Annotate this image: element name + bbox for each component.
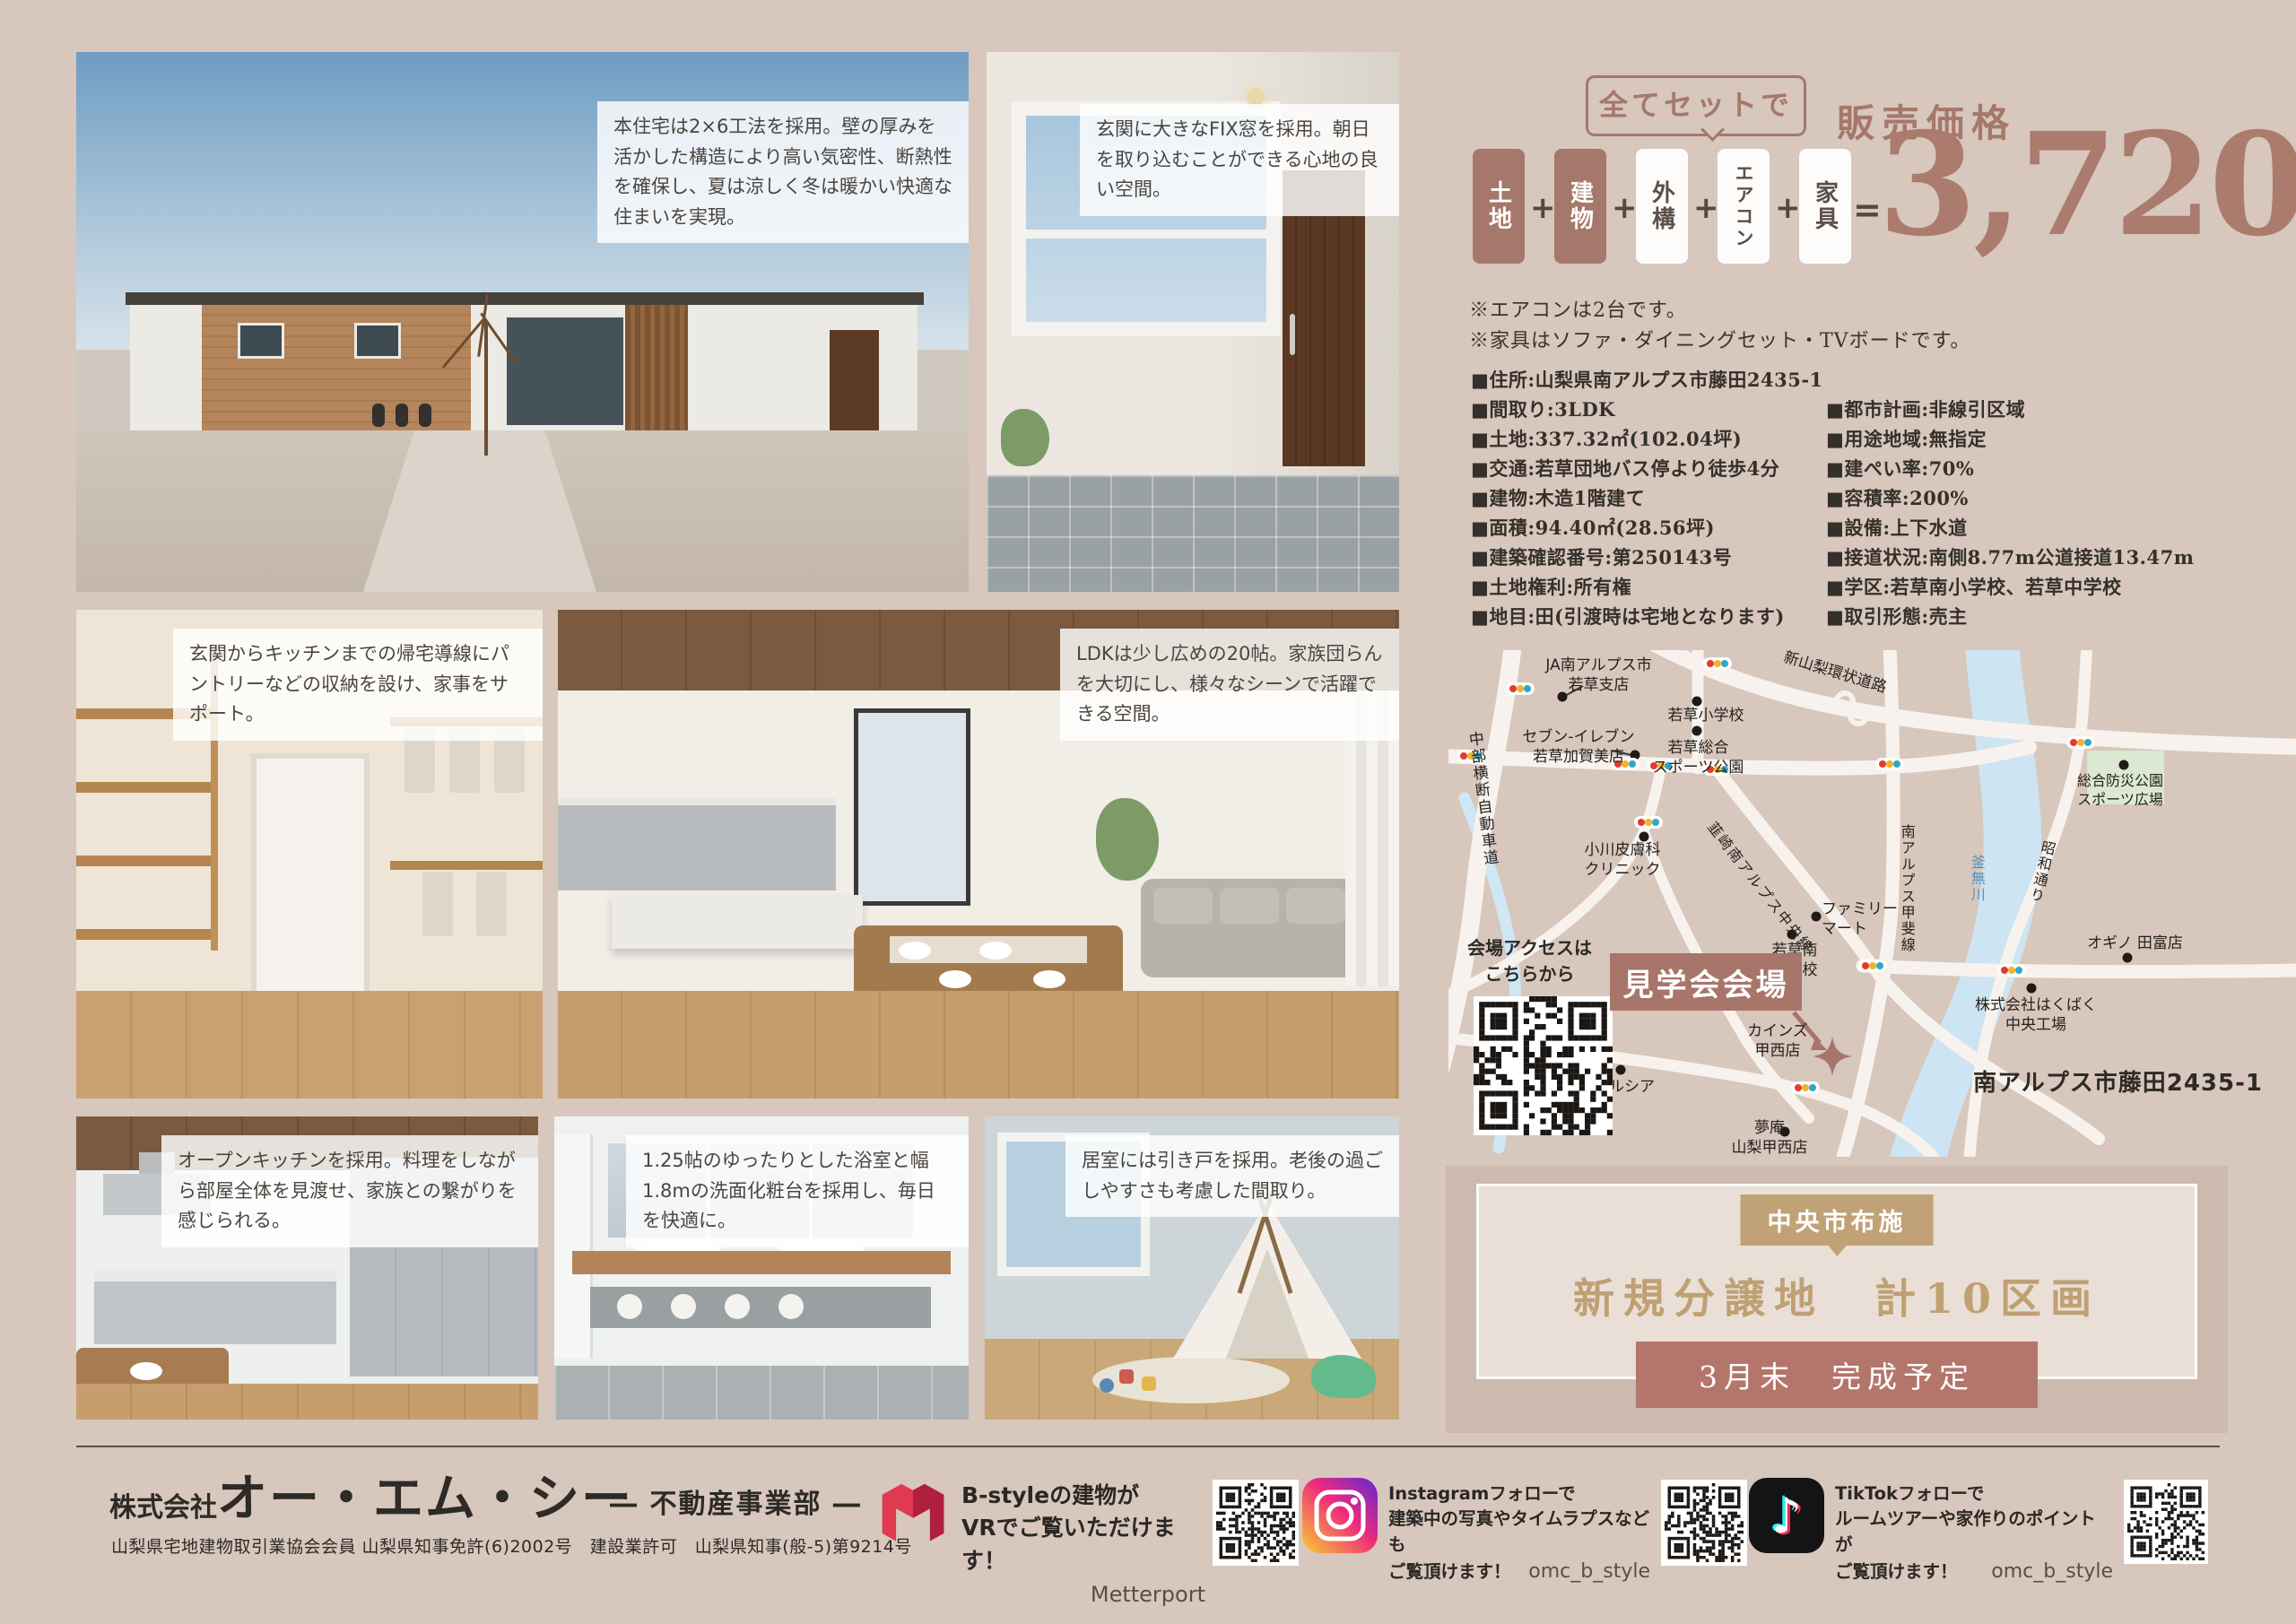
plus-sign: + <box>1775 190 1801 226</box>
access-map: JA南アルプス市 若草支店 中部横断自動車道 セブン-イレブン 若草加賀美店 若… <box>1448 650 2296 1157</box>
map-label-ogino: オギノ 田富店 <box>2074 934 2196 953</box>
instagram-text: Instagramフォローで 建築中の写真やタイムラプスなども ご覧頂けます！ … <box>1388 1481 1650 1586</box>
photo-entrance: 玄関に大きなFIX窓を採用。朝日を取り込むことができる心地の良い空間。 <box>987 52 1399 592</box>
instagram-line2: 建築中の写真やタイムラプスなども <box>1388 1507 1650 1558</box>
traffic-light <box>2066 736 2095 749</box>
plus-sign: + <box>1612 190 1638 226</box>
promo-location-tag: 中央市布施 <box>1741 1194 1934 1246</box>
company-prefix: 株式会社 <box>109 1485 217 1524</box>
detail-zoning: ■用途地域:無指定 <box>1826 425 1987 452</box>
photo-bedroom: 居室には引き戸を採用。老後の過ごしやすさも考慮した間取り。 <box>985 1116 1399 1420</box>
tiktok-handle: omc_b_style <box>1991 1558 2113 1586</box>
map-label-ja: JA南アルプス市 若草支店 <box>1538 656 1659 695</box>
bstyle-line1: B-styleの建物が <box>961 1480 1205 1512</box>
detail-floor-ratio: ■容積率:200% <box>1826 484 1969 511</box>
traffic-light <box>1634 816 1663 829</box>
map-label-familymart: ファミリー マート <box>1822 899 1907 939</box>
poi-dot <box>1692 697 1702 707</box>
kitchen-counter <box>558 798 836 890</box>
pendant-light <box>1247 88 1265 106</box>
detail-transaction: ■取引形態:売主 <box>1826 603 1968 630</box>
photo-caption-exterior: 本住宅は2×6工法を採用。壁の厚みを活かした構造により高い気密性、断熱性を確保し… <box>597 101 969 243</box>
map-qr-code <box>1474 996 1613 1135</box>
component-building: 建物 <box>1554 149 1606 264</box>
poi-dot <box>2119 760 2129 770</box>
photo-bathroom: 1.25帖のゆったりとした浴室と幅1.8mの洗面化粧台を採用し、毎日を快適に。 <box>554 1116 969 1420</box>
towel-shelf <box>590 1287 931 1328</box>
detail-address: ■住所:山梨県南アルプス市藤田2435-1 <box>1471 366 1823 393</box>
price-amount: 3,720 万円 <box>1878 115 2296 322</box>
exterior-roof <box>126 292 924 305</box>
traffic-light <box>1506 682 1535 695</box>
poi-dot <box>2027 984 2037 994</box>
toy-block <box>1142 1376 1156 1391</box>
wood-floor <box>76 991 543 1099</box>
pantry-door <box>251 753 370 999</box>
detail-layout: ■間取り:3LDK <box>1471 395 1615 422</box>
instagram-handle: omc_b_style <box>1528 1558 1650 1586</box>
map-label-seven-eleven: セブン-イレブン 若草加賀美店 <box>1520 727 1637 767</box>
tree <box>484 321 488 456</box>
map-label-kamanashi-river: 釜無川 <box>1967 838 1986 919</box>
detail-confirmation-no: ■建築確認番号:第250143号 <box>1471 543 1732 570</box>
detail-coverage: ■建ぺい率:70% <box>1826 455 1974 482</box>
venue-label: 見学会会場 <box>1610 953 1802 1011</box>
bstyle-text: B-styleの建物が VRでご覧いただけます！ Metterport <box>961 1480 1205 1611</box>
wood-floor <box>76 1384 538 1420</box>
component-furniture: 家具 <box>1799 149 1851 264</box>
detail-area: ■面積:94.40㎡(28.56坪) <box>1471 514 1715 541</box>
detail-access: ■交通:若草団地バス停より徒歩4分 <box>1471 455 1779 482</box>
photo-caption-ldk: LDKは少し広めの20帖。家族団らんを大切にし、様々なシーンで活躍できる空間。 <box>1060 629 1399 741</box>
bstyle-logo-icon <box>874 1478 952 1555</box>
person <box>396 404 408 427</box>
sofa <box>1141 879 1356 977</box>
toy-ball <box>1100 1378 1114 1393</box>
photo-kitchen: オープンキッチンを採用。料理をしながら部屋全体を見渡せ、家族との繋がりを感じられ… <box>76 1116 538 1420</box>
tiktok-qr-code <box>2124 1480 2208 1564</box>
all-set-bubble: 全てセットで <box>1586 75 1806 136</box>
exterior-window <box>238 323 284 359</box>
exterior-window <box>354 323 401 359</box>
plant <box>1096 798 1159 881</box>
plus-sign: + <box>1693 190 1719 226</box>
traffic-light <box>1703 657 1732 670</box>
tiktok-line2: ルームツアーや家作りのポイントが <box>1835 1507 2113 1558</box>
instagram-icon <box>1302 1478 1378 1553</box>
detail-city-planning: ■都市計画:非線引区域 <box>1826 395 2025 422</box>
tag-tail <box>1827 1245 1847 1256</box>
promo-location-text: 中央市布施 <box>1768 1209 1907 1237</box>
counter <box>94 1269 336 1281</box>
bstyle-qr-code <box>1213 1480 1299 1566</box>
exterior-house <box>130 305 918 430</box>
detail-land: ■土地:337.32㎡(102.04坪) <box>1471 425 1742 452</box>
island-counter <box>612 895 863 949</box>
exterior-slats <box>625 305 688 430</box>
photo-caption-bathroom: 1.25帖のゆったりとした浴室と幅1.8mの洗面化粧台を採用し、毎日を快適に。 <box>626 1135 969 1247</box>
map-label-kai-line: 南アルプス甲斐線 <box>1897 817 1916 960</box>
glass-door <box>854 708 970 906</box>
tiktok-line3: ご覧頂けます！ <box>1835 1559 1958 1585</box>
wood-floor <box>558 991 1399 1099</box>
map-address: 南アルプス市藤田2435-1 <box>1973 1064 2263 1098</box>
poi-dot <box>1812 912 1822 922</box>
detail-land-rights: ■土地権利:所有権 <box>1471 573 1631 600</box>
photo-exterior: 本住宅は2×6工法を採用。壁の厚みを活かした構造により高い気密性、断熱性を確保し… <box>76 52 969 592</box>
bstyle-credit: Metterport <box>961 1579 1205 1611</box>
plus-sign: + <box>1530 190 1556 226</box>
photo-caption-pantry: 玄関からキッチンまでの帰宅導線にパントリーなどの収納を設け、家事をサポート。 <box>173 629 543 741</box>
price-note-furniture: ※家具はソファ・ダイニングセット・TVボードです。 <box>1469 325 1970 353</box>
price-note-aircon: ※エアコンは2台です。 <box>1469 294 1687 323</box>
photo-pantry: 玄関からキッチンまでの帰宅導線にパントリーなどの収納を設け、家事をサポート。 <box>76 610 543 1099</box>
hanger-rod <box>390 861 543 870</box>
toy-dinosaur <box>1311 1355 1376 1398</box>
map-label-sports-park: 若草総合 スポーツ公園 <box>1651 738 1745 777</box>
photo-caption-kitchen: オープンキッチンを採用。料理をしながら部屋全体を見渡せ、家族との繋がりを感じられ… <box>161 1135 538 1247</box>
detail-structure: ■建物:木造1階建て <box>1471 484 1645 511</box>
person <box>419 404 431 427</box>
plant <box>1001 409 1049 466</box>
promo-headline: 新規分譲地 計10区画 <box>1446 1266 2228 1325</box>
footer-divider <box>76 1446 2220 1447</box>
poi-dot <box>1692 726 1702 736</box>
bstyle-line2: VRでご覧いただけます！ <box>961 1512 1205 1577</box>
promo-completion: 3月末 完成予定 <box>1636 1342 2038 1408</box>
map-label-cainz: カインズ 甲西店 <box>1741 1021 1814 1061</box>
company-division: ― 不動産事業部 ― <box>610 1481 862 1521</box>
price-number: 3,720 <box>1878 115 2296 256</box>
map-label-bousai-park: 総合防災公園 スポーツ広場 <box>2067 772 2173 810</box>
toy-block <box>1119 1369 1134 1384</box>
tiktok-icon: ♪ ♪ ♪ <box>1749 1478 1824 1553</box>
photo-caption-bedroom: 居室には引き戸を採用。老後の過ごしやすさも考慮した間取り。 <box>1065 1135 1399 1217</box>
detail-school: ■学区:若草南小学校、若草中学校 <box>1826 573 2122 600</box>
map-label-yumean: 夢庵 山梨甲西店 <box>1725 1118 1814 1158</box>
person <box>372 404 385 427</box>
photo-ldk: LDKは少し広めの20帖。家族団らんを大切にし、様々なシーンで活躍できる空間。 <box>558 610 1399 1099</box>
new-lots-panel: 中央市布施 新規分譲地 計10区画 3月末 完成予定 <box>1446 1166 2228 1433</box>
shower-glass <box>554 1134 593 1359</box>
traffic-light <box>1791 1081 1820 1094</box>
license-text: 山梨県宅地建物取引業協会会員 山梨県知事免許(6)2002号 建設業許可 山梨県… <box>111 1533 912 1558</box>
detail-road: ■接道状況:南側8.77m公道接道13.47m <box>1826 543 2194 570</box>
component-exterior-work: 外構 <box>1636 149 1688 264</box>
component-land: 土地 <box>1473 149 1525 264</box>
instagram-qr-code <box>1661 1480 1747 1566</box>
poi-dot <box>1616 1065 1626 1075</box>
map-access-note: 会場アクセスは こちらから <box>1456 934 1604 986</box>
flyer-page: 本住宅は2×6工法を採用。壁の厚みを活かした構造により高い気密性、断熱性を確保し… <box>0 0 2296 1624</box>
exterior-glass-wall <box>507 314 623 425</box>
map-label-ogawa-clinic: 小川皮膚科 クリニック <box>1574 840 1671 880</box>
instagram-line3: ご覧頂けます！ <box>1388 1559 1511 1585</box>
tile-floor <box>554 1366 969 1420</box>
traffic-light <box>1858 960 1887 972</box>
poi-dot <box>2123 953 2133 963</box>
tile-floor <box>987 475 1399 592</box>
detail-land-category: ■地目:田(引渡時は宅地となります) <box>1471 603 1785 630</box>
photo-caption-entrance: 玄関に大きなFIX窓を採用。朝日を取り込むことができる心地の良い空間。 <box>1080 104 1399 216</box>
map-label-hakubaku: 株式会社はくばく 中央工場 <box>1973 995 2099 1035</box>
traffic-light <box>1875 758 1904 770</box>
instagram-line1: Instagramフォローで <box>1388 1481 1650 1507</box>
tiktok-text: TikTokフォローで ルームツアーや家作りのポイントが ご覧頂けます！ omc… <box>1835 1481 2113 1586</box>
tiktok-line1: TikTokフォローで <box>1835 1481 2113 1507</box>
map-label-wakakusa-es: 若草小学校 <box>1661 706 1751 725</box>
component-aircon: エアコン <box>1718 149 1770 264</box>
vanity-counter <box>572 1251 951 1274</box>
detail-utilities: ■設備:上下水道 <box>1826 514 1968 541</box>
company-name: オー・エム・シー <box>217 1458 633 1531</box>
traffic-light <box>1997 964 2026 977</box>
exterior-door <box>830 330 879 430</box>
